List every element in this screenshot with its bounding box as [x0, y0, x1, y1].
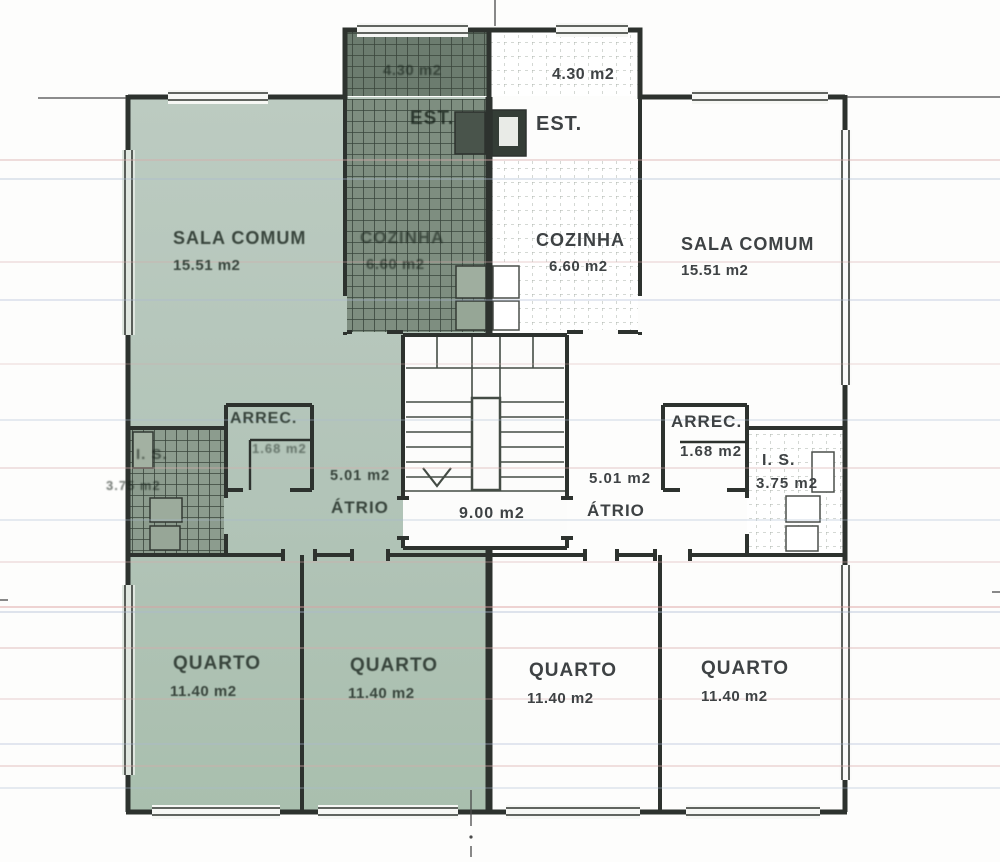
label-quarto1-left: QUARTO — [173, 653, 261, 675]
label-arrec-right: ARREC. — [671, 412, 742, 432]
area-sala-comum-right: 15.51 m2 — [681, 262, 748, 279]
area-quarto1-left: 11.40 m2 — [170, 683, 237, 700]
area-quarto1-right: 11.40 m2 — [527, 690, 594, 707]
floor-plan-drawing — [0, 0, 1000, 862]
area-quarto2-right: 11.40 m2 — [701, 688, 768, 705]
area-est-right: 4.30 m2 — [552, 66, 614, 84]
label-est-left: EST. — [410, 108, 454, 130]
area-cozinha-left: 6.60 m2 — [366, 256, 425, 273]
label-quarto2-right: QUARTO — [701, 658, 789, 680]
label-is-right: I. S. — [762, 452, 795, 470]
label-is-left: I. S. — [136, 446, 168, 463]
area-is-right: 3.75 m2 — [756, 475, 818, 492]
area-stairwell: 9.00 m2 — [459, 505, 525, 523]
area-quarto2-left: 11.40 m2 — [348, 685, 415, 702]
area-arrec-left: 1.68 m2 — [252, 441, 307, 456]
floor-plan: 4.30 m2 EST. 4.30 m2 EST. SALA COMUM 15.… — [0, 0, 1000, 862]
area-atrio-right: 5.01 m2 — [589, 470, 651, 487]
label-arrec-left: ARREC. — [230, 410, 297, 428]
area-est-left: 4.30 m2 — [383, 62, 442, 79]
label-atrio-right: ÁTRIO — [587, 501, 645, 521]
label-sala-comum-right: SALA COMUM — [681, 234, 814, 255]
label-sala-comum-left: SALA COMUM — [173, 228, 306, 249]
area-atrio-left: 5.01 m2 — [330, 468, 390, 484]
area-is-left: 3.75 m2 — [106, 478, 161, 493]
label-cozinha-left: COZINHA — [360, 228, 444, 248]
area-sala-comum-left: 15.51 m2 — [173, 257, 240, 274]
area-cozinha-right: 6.60 m2 — [549, 258, 608, 275]
label-atrio-left: ÁTRIO — [331, 498, 389, 518]
area-arrec-right: 1.68 m2 — [680, 443, 742, 460]
label-cozinha-right: COZINHA — [536, 230, 625, 251]
label-quarto2-left: QUARTO — [350, 655, 438, 677]
label-quarto1-right: QUARTO — [529, 660, 617, 682]
label-est-right: EST. — [536, 113, 582, 136]
